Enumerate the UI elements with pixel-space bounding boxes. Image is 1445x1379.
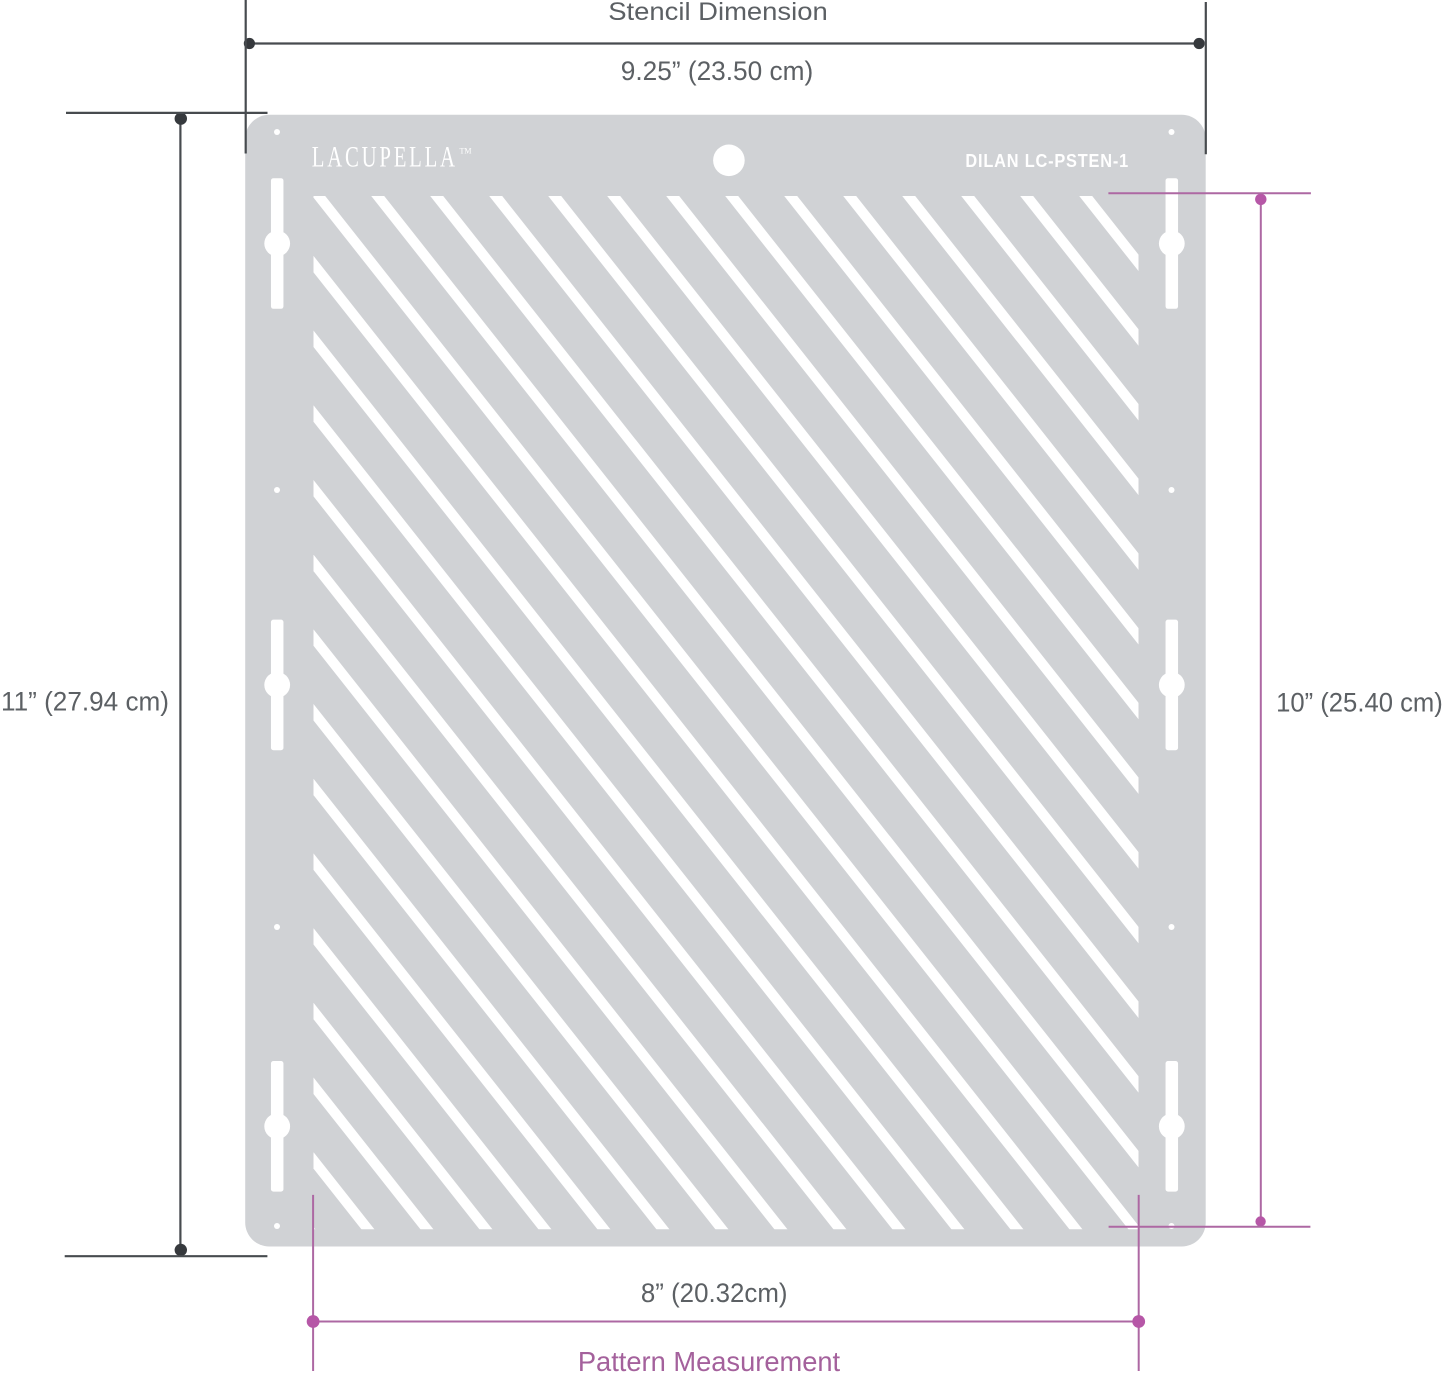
svg-text:LACUPELLA: LACUPELLA (312, 140, 458, 173)
svg-text:Pattern Measurement: Pattern Measurement (578, 1346, 841, 1374)
svg-text:DILAN LC-PSTEN-1: DILAN LC-PSTEN-1 (965, 151, 1129, 171)
svg-text:Stencil Dimension: Stencil Dimension (608, 0, 828, 26)
svg-text:9.25” (23.50 cm): 9.25” (23.50 cm) (621, 56, 814, 86)
svg-text:11” (27.94 cm): 11” (27.94 cm) (1, 686, 169, 716)
svg-text:8” (20.32cm): 8” (20.32cm) (641, 1278, 788, 1308)
svg-text:10” (25.40 cm): 10” (25.40 cm) (1276, 688, 1443, 718)
svg-text:TM: TM (460, 147, 472, 156)
